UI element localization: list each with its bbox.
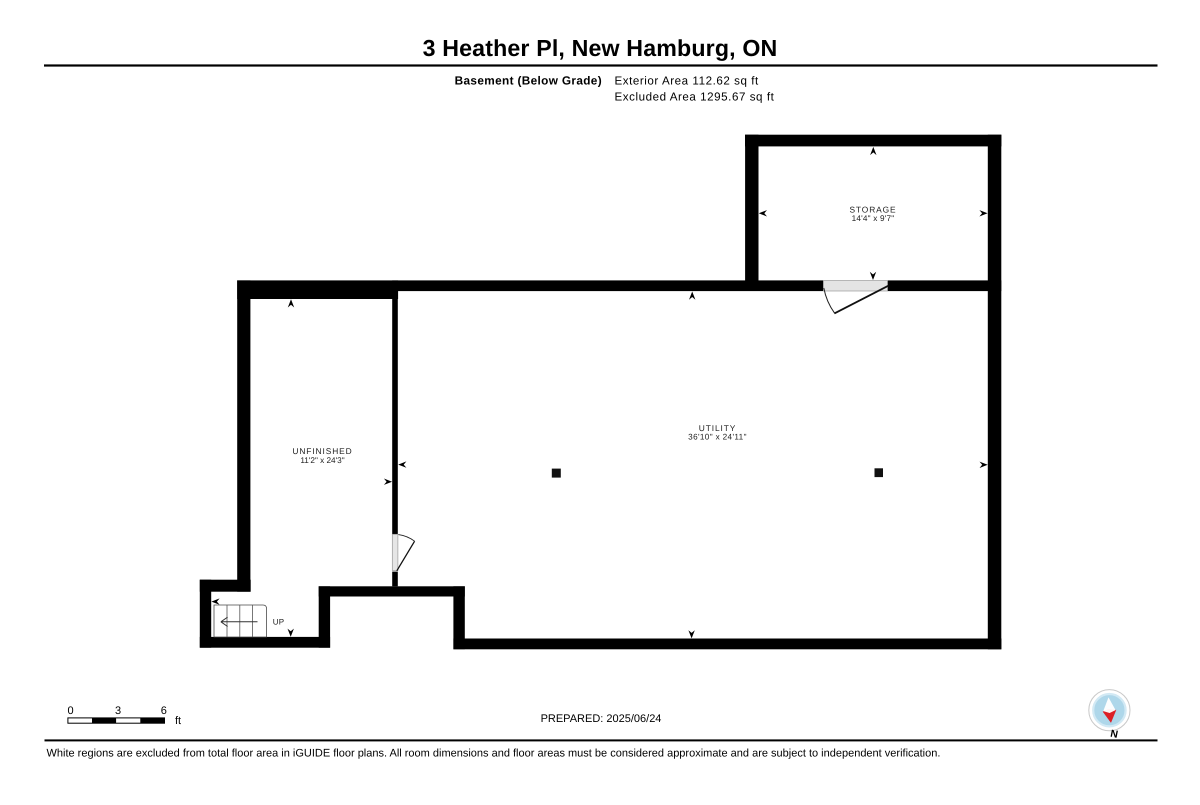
- svg-text:3 Heather Pl, New Hamburg, ON: 3 Heather Pl, New Hamburg, ON: [423, 35, 778, 61]
- svg-text:ft: ft: [175, 715, 181, 727]
- svg-text:PREPARED: 2025/06/24: PREPARED: 2025/06/24: [541, 713, 662, 725]
- svg-text:36'10" x 24'11": 36'10" x 24'11": [688, 433, 747, 442]
- svg-text:11'2" x 24'3": 11'2" x 24'3": [300, 456, 344, 465]
- svg-text:Excluded Area 1295.67 sq ft: Excluded Area 1295.67 sq ft: [615, 91, 775, 104]
- svg-text:Exterior Area 112.62 sq ft: Exterior Area 112.62 sq ft: [615, 75, 759, 88]
- svg-text:STORAGE: STORAGE: [849, 205, 896, 215]
- svg-text:Basement (Below Grade): Basement (Below Grade): [455, 74, 602, 88]
- svg-text:14'4" x 9'7": 14'4" x 9'7": [852, 214, 895, 223]
- svg-text:UNFINISHED: UNFINISHED: [292, 446, 352, 456]
- svg-text:UP: UP: [273, 618, 285, 627]
- svg-text:3: 3: [115, 705, 121, 717]
- svg-text:6: 6: [161, 705, 167, 717]
- svg-text:0: 0: [67, 705, 73, 717]
- svg-text:UTILITY: UTILITY: [699, 423, 736, 433]
- svg-text:White regions are excluded fro: White regions are excluded from total fl…: [47, 748, 941, 760]
